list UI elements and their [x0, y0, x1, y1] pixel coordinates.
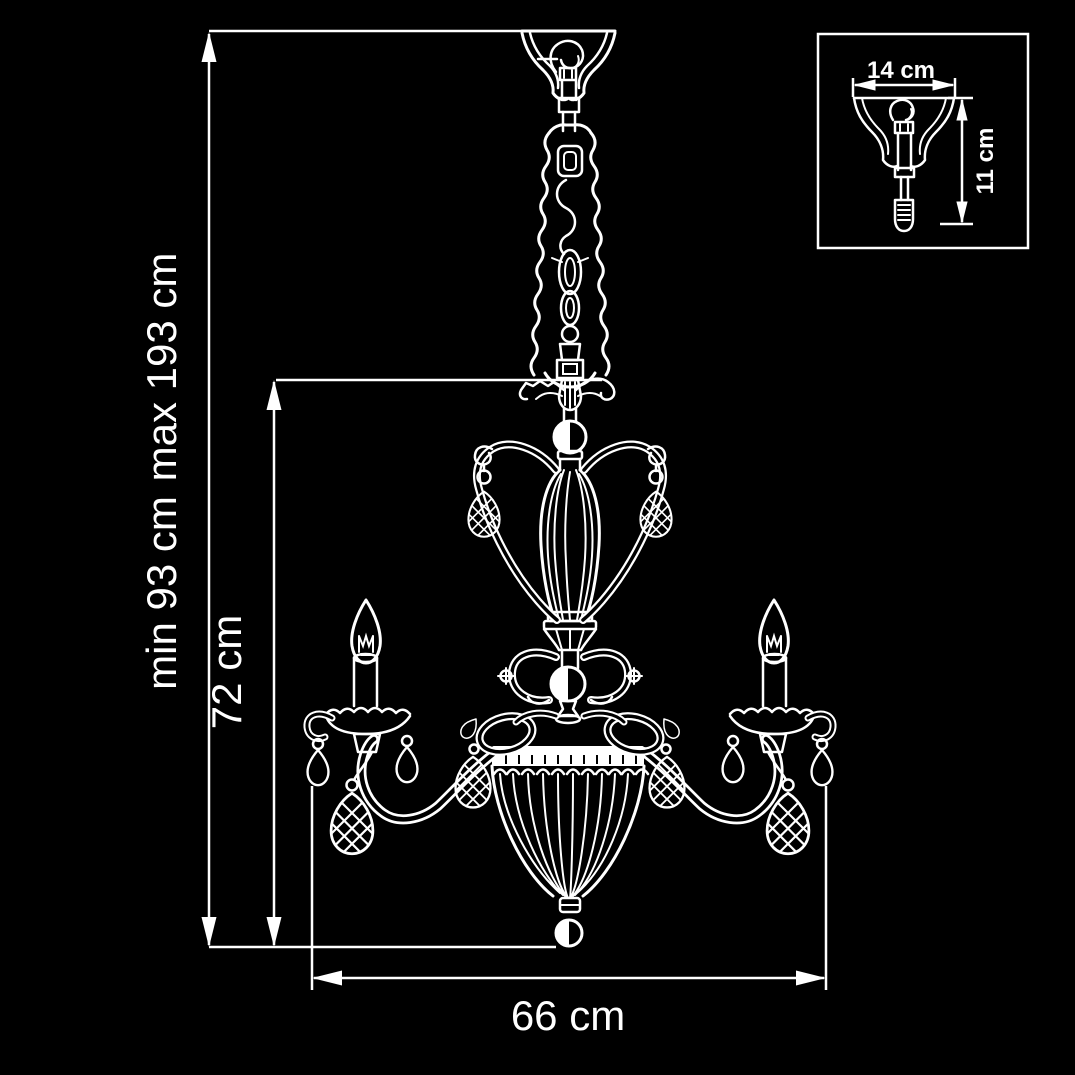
- arrow-right-icon: [796, 971, 826, 986]
- label-body-width: 66 cm: [511, 992, 625, 1039]
- chandelier-drawing: [307, 31, 833, 946]
- dimension-overall-height: max 193 cm min 93 cm: [138, 31, 522, 947]
- right-side-assembly: [583, 445, 833, 873]
- chain-links: [552, 146, 588, 378]
- label-max-height: max 193 cm: [138, 253, 185, 482]
- arrow-left-icon: [312, 971, 342, 986]
- inset-canopy-drawing: [854, 98, 954, 231]
- ceiling-canopy: [522, 31, 615, 131]
- label-canopy-width: 14 cm: [867, 57, 935, 84]
- label-body-height: 72 cm: [203, 615, 250, 729]
- upper-ball: [554, 421, 586, 459]
- leaf-crown: [520, 379, 614, 422]
- inset-dimension-height: [940, 98, 973, 224]
- diagram-stage: max 193 cm min 93 cm 72 cm 66 cm: [0, 0, 1075, 1075]
- label-canopy-height: 11 cm: [972, 128, 999, 195]
- crystal-basket: [492, 746, 648, 946]
- arrow-up-icon: [267, 380, 282, 410]
- dimension-body-height: 72 cm: [203, 380, 602, 947]
- chandelier-dimension-diagram: max 193 cm min 93 cm 72 cm 66 cm: [0, 0, 1075, 1075]
- label-min-height: min 93 cm: [138, 496, 185, 690]
- arrow-up-icon: [202, 32, 217, 62]
- chain-with-fabric-sleeve: [531, 125, 609, 387]
- canopy-inset: 14 cm: [818, 34, 1028, 248]
- arrow-down-icon: [202, 917, 217, 947]
- arrow-down-icon: [267, 917, 282, 947]
- vase-column: [541, 459, 600, 668]
- left-side-assembly: [307, 445, 557, 873]
